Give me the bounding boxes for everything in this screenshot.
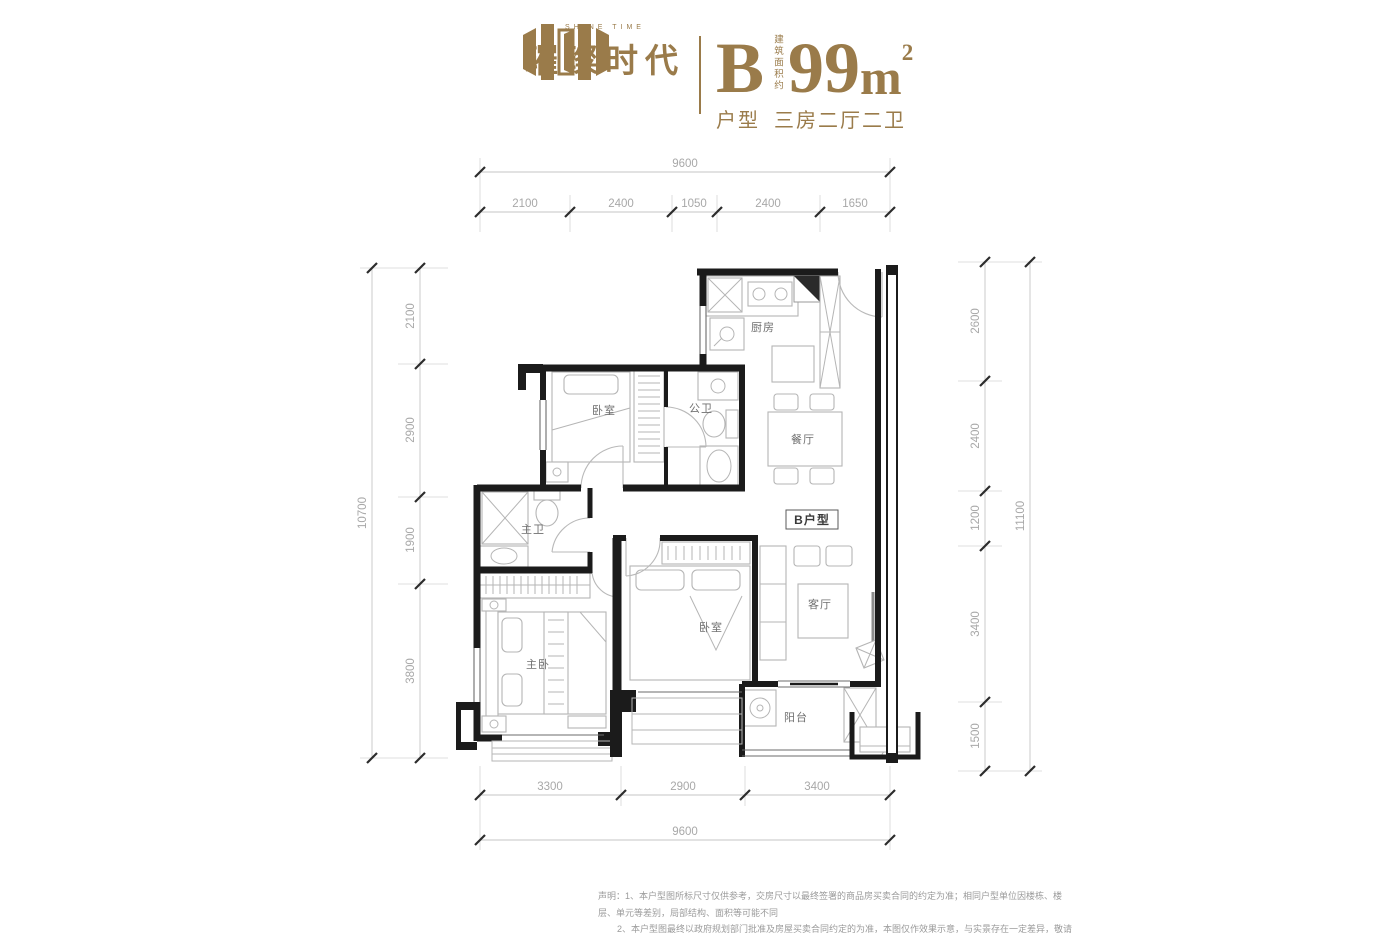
dim-bottom-seg1: 3300 <box>537 781 563 793</box>
dim-left-seg1: 2100 <box>405 303 417 329</box>
dim-left-seg2: 2900 <box>405 417 417 443</box>
room-label-living: 客厅 <box>808 597 832 611</box>
dim-left-seg4: 3800 <box>405 658 417 684</box>
room-label-balcony: 阳台 <box>784 710 808 724</box>
room-label-master-bath: 主卫 <box>521 523 545 536</box>
dim-top-seg5: 1650 <box>842 198 868 210</box>
dim-right-total: 11100 <box>1015 501 1027 531</box>
dim-left-total: 10700 <box>357 497 369 529</box>
disclaimer-line1: 声明：1、本户型图所标尺寸仅供参考，交房尺寸以最终签署的商品房买卖合同的约定为准… <box>598 888 1076 921</box>
bedroom1-furniture <box>546 370 664 482</box>
dim-top-seg4: 2400 <box>755 198 781 210</box>
room-label-dining: 餐厅 <box>791 432 815 446</box>
room-label-master-bedroom: 主卧 <box>526 658 550 671</box>
master-bath-door <box>552 518 590 552</box>
dim-bottom-seg2: 2900 <box>670 781 696 793</box>
room-label-bedroom2: 卧室 <box>699 620 723 634</box>
dim-top-seg1: 2100 <box>512 198 538 210</box>
floorplan-page: SHINE TIME 璀璨时代 B 建筑面积约 99 m2 户型 三房二厅二卫 <box>0 0 1400 933</box>
dim-bottom-total: 9600 <box>672 826 698 838</box>
dim-bottom-seg3: 3400 <box>804 781 830 793</box>
unit-tag-label: B户型 <box>794 512 830 527</box>
bedroom2-furniture <box>630 542 750 680</box>
furniture <box>480 276 910 758</box>
unit-tag-badge: B户型 <box>786 510 838 529</box>
disclaimer: 声明：1、本户型图所标尺寸仅供参考，交房尺寸以最终签署的商品房买卖合同的约定为准… <box>598 888 1076 933</box>
dim-left-seg3: 1900 <box>405 527 417 553</box>
floorplan-drawing: 9600 2100 2400 1050 2400 1650 3300 2900 … <box>0 0 1400 933</box>
dim-top-seg3: 1050 <box>681 198 707 210</box>
dim-right-seg2: 2400 <box>970 423 982 449</box>
room-label-public-bath: 公卫 <box>689 403 713 415</box>
room-label-bedroom1: 卧室 <box>592 403 616 417</box>
disclaimer-line2: 2、本户型图最终以政府规划部门批准及房屋买卖合同约定的为准，本图仅作效果示意，与… <box>617 921 1076 933</box>
public-bath-fixtures <box>698 372 738 486</box>
dim-right-seg5: 1500 <box>970 723 982 749</box>
ac-platform-unit <box>860 727 910 758</box>
room-label-kitchen: 厨房 <box>751 321 775 334</box>
balcony-fixtures <box>744 688 876 742</box>
master-wardrobe <box>480 572 590 598</box>
dim-right-seg4: 3400 <box>970 611 982 637</box>
dim-right-seg1: 2600 <box>970 308 982 334</box>
master-bath-fixtures <box>480 490 560 567</box>
dim-top-total: 9600 <box>672 158 698 170</box>
dim-right-seg3: 1200 <box>970 505 982 531</box>
dim-top-seg2: 2400 <box>608 198 634 210</box>
